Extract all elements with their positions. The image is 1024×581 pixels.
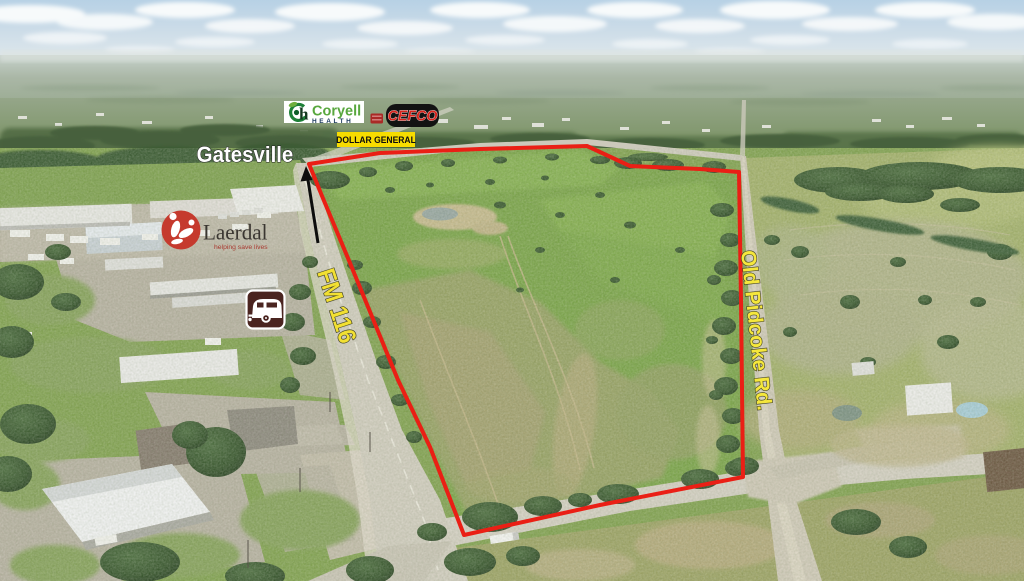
svg-text:CEFCO: CEFCO bbox=[388, 108, 438, 124]
svg-text:h: h bbox=[299, 105, 309, 124]
svg-text:Gatesville: Gatesville bbox=[197, 142, 294, 167]
svg-text:Laerdal: Laerdal bbox=[203, 220, 268, 245]
svg-text:HEALTH: HEALTH bbox=[312, 118, 353, 125]
svg-text:DOLLAR GENERAL: DOLLAR GENERAL bbox=[336, 135, 416, 146]
svg-text:helping save lives: helping save lives bbox=[214, 244, 268, 251]
